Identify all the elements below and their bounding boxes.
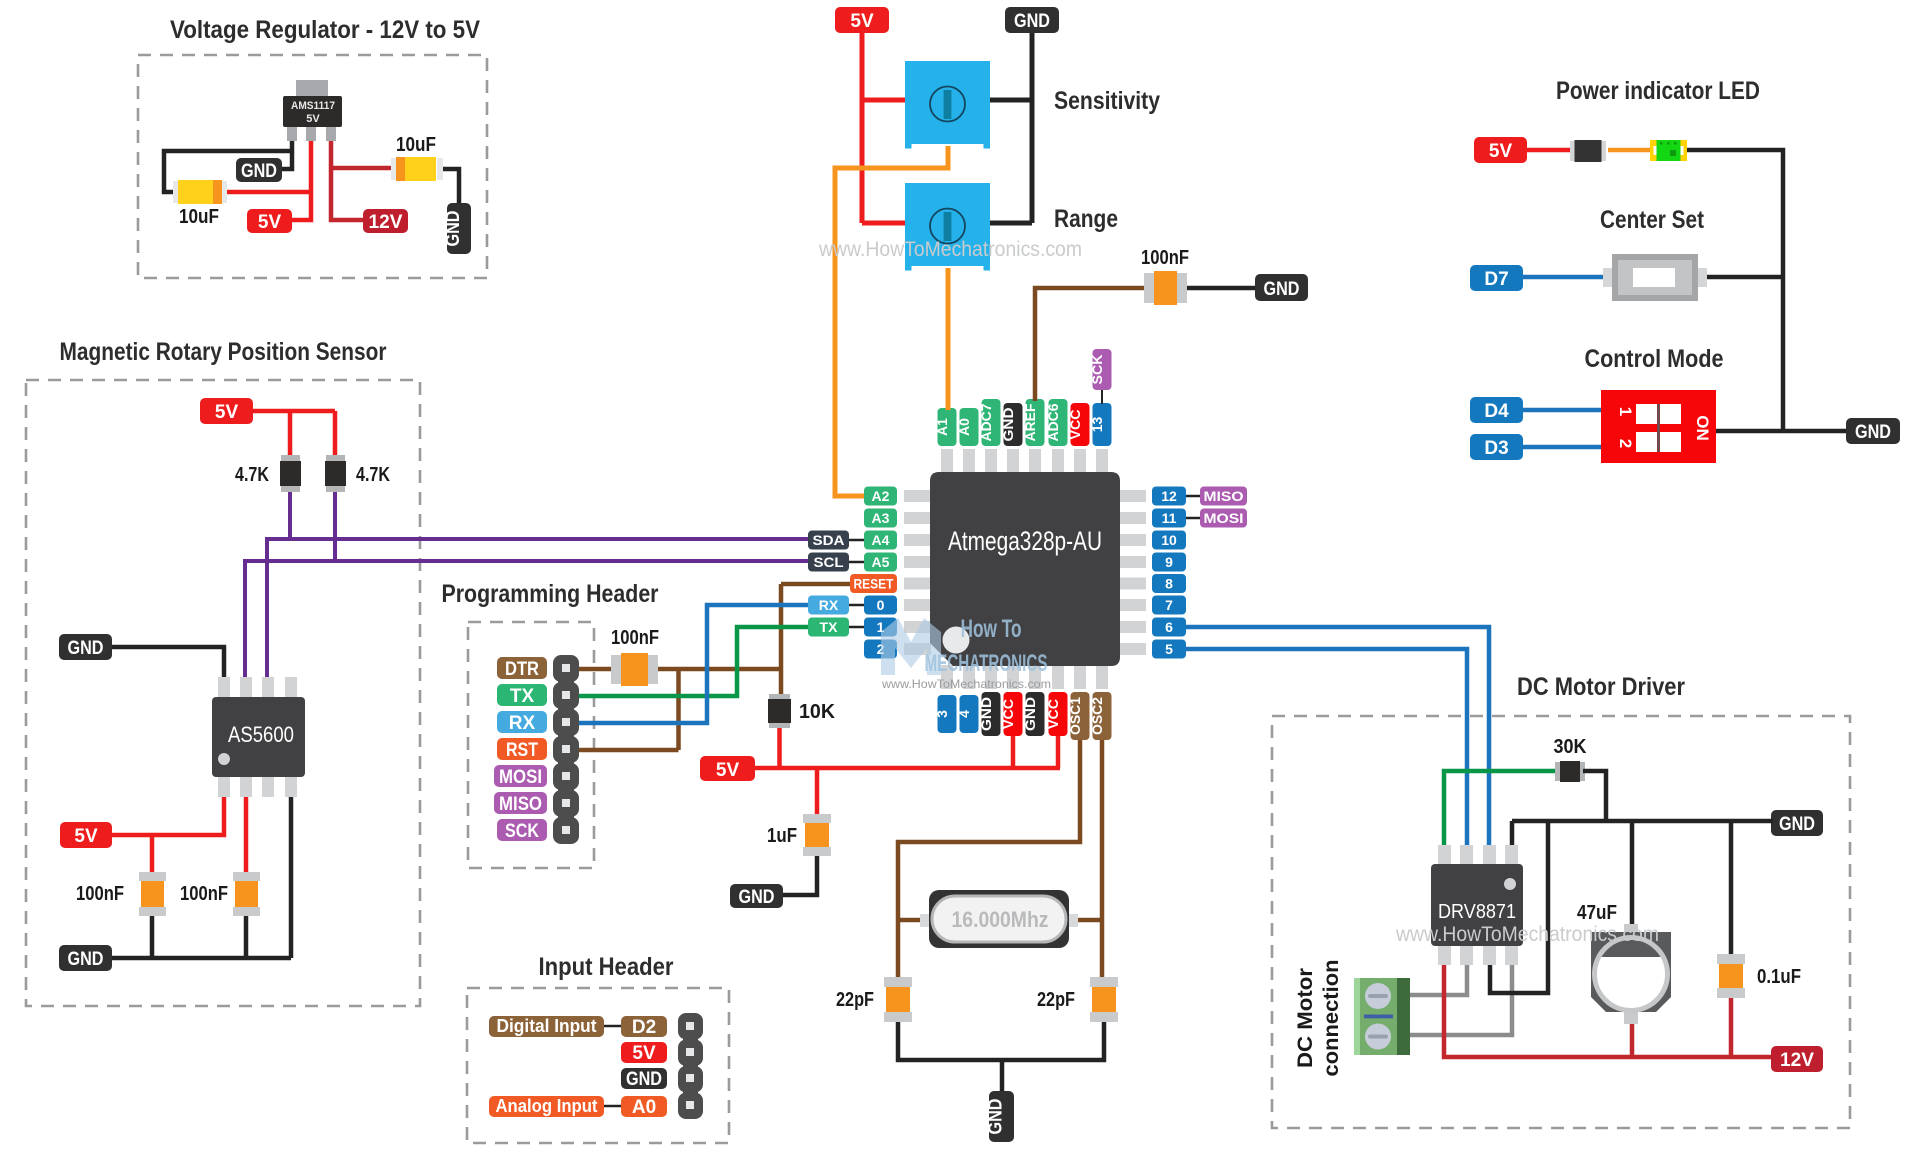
- svg-text:47uF: 47uF: [1577, 902, 1617, 924]
- svg-text:GND: GND: [978, 697, 994, 731]
- svg-text:D2: D2: [632, 1017, 656, 1038]
- svg-text:MOSI: MOSI: [1204, 510, 1244, 526]
- svg-text:GND: GND: [986, 1099, 1007, 1135]
- svg-text:Programming Header: Programming Header: [442, 580, 659, 608]
- svg-text:30K: 30K: [1554, 736, 1587, 758]
- svg-text:MECHATRONICS: MECHATRONICS: [925, 650, 1048, 677]
- svg-text:5V: 5V: [632, 1043, 656, 1064]
- svg-text:connection: connection: [1320, 960, 1343, 1077]
- svg-text:100nF: 100nF: [180, 883, 228, 905]
- svg-text:10uF: 10uF: [396, 134, 436, 156]
- svg-text:Range: Range: [1054, 205, 1118, 233]
- svg-text:GND: GND: [1779, 814, 1815, 835]
- svg-text:Voltage Regulator - 12V to 5V: Voltage Regulator - 12V to 5V: [170, 16, 480, 44]
- svg-text:12V: 12V: [369, 212, 403, 233]
- svg-text:DC Motor Driver: DC Motor Driver: [1517, 673, 1685, 701]
- svg-text:VCC: VCC: [1067, 410, 1083, 440]
- svg-text:Power indicator LED: Power indicator LED: [1556, 77, 1760, 105]
- svg-text:A4: A4: [872, 532, 890, 548]
- svg-text:22pF: 22pF: [1037, 989, 1075, 1011]
- svg-text:GND: GND: [68, 949, 104, 970]
- svg-text:13: 13: [1089, 417, 1105, 433]
- svg-text:7: 7: [1165, 597, 1173, 613]
- svg-text:5V: 5V: [850, 11, 874, 32]
- svg-text:D7: D7: [1484, 269, 1508, 290]
- svg-text:Atmega328p-AU: Atmega328p-AU: [948, 526, 1102, 556]
- svg-text:11: 11: [1162, 510, 1177, 526]
- svg-text:www.HowToMechatronics.com: www.HowToMechatronics.com: [818, 238, 1082, 261]
- svg-text:A0: A0: [956, 418, 972, 436]
- svg-text:DTR: DTR: [505, 659, 539, 680]
- svg-text:Digital Input: Digital Input: [497, 1016, 597, 1036]
- svg-text:GND: GND: [1264, 279, 1300, 300]
- svg-text:D4: D4: [1484, 401, 1509, 422]
- svg-text:100nF: 100nF: [1141, 247, 1189, 269]
- svg-text:5: 5: [1165, 641, 1173, 657]
- svg-text:DRV8871: DRV8871: [1438, 901, 1516, 923]
- svg-text:A1: A1: [934, 418, 950, 436]
- svg-text:5V: 5V: [258, 212, 282, 233]
- svg-text:SDA: SDA: [813, 532, 845, 548]
- svg-text:RX: RX: [509, 713, 536, 734]
- svg-text:GND: GND: [626, 1069, 662, 1090]
- svg-text:SCL: SCL: [814, 554, 844, 570]
- svg-text:2: 2: [1616, 439, 1635, 448]
- svg-text:DC Motor: DC Motor: [1294, 968, 1317, 1068]
- svg-text:1uF: 1uF: [767, 825, 797, 847]
- svg-text:9: 9: [1165, 554, 1173, 570]
- svg-text:OSC2: OSC2: [1089, 697, 1105, 735]
- svg-text:12: 12: [1161, 488, 1177, 504]
- svg-text:Sensitivity: Sensitivity: [1054, 87, 1160, 115]
- svg-text:GND: GND: [1022, 697, 1038, 731]
- svg-text:3: 3: [934, 710, 950, 718]
- svg-text:A5: A5: [872, 554, 890, 570]
- svg-text:www.HowToMechatronics.com: www.HowToMechatronics.com: [1395, 923, 1659, 946]
- svg-text:5V: 5V: [716, 760, 740, 781]
- svg-text:5V: 5V: [1489, 141, 1513, 162]
- svg-text:Center Set: Center Set: [1600, 206, 1705, 234]
- svg-text:GND: GND: [241, 161, 277, 182]
- svg-text:10uF: 10uF: [179, 206, 219, 228]
- svg-text:AREF: AREF: [1022, 403, 1038, 441]
- svg-text:RESET: RESET: [854, 576, 894, 592]
- svg-text:GND: GND: [1855, 422, 1891, 443]
- svg-text:GND: GND: [739, 887, 775, 908]
- svg-text:Input Header: Input Header: [539, 953, 674, 981]
- svg-text:AMS1117: AMS1117: [291, 100, 335, 112]
- svg-text:MOSI: MOSI: [499, 767, 542, 788]
- svg-text:ON: ON: [1693, 415, 1712, 441]
- svg-text:10: 10: [1161, 532, 1177, 548]
- svg-text:4.7K: 4.7K: [235, 464, 269, 486]
- svg-text:RX: RX: [819, 597, 839, 613]
- svg-text:5V: 5V: [306, 113, 320, 125]
- svg-text:SCK: SCK: [505, 821, 539, 842]
- svg-text:SCK: SCK: [1089, 355, 1105, 385]
- svg-text:RST: RST: [506, 740, 538, 761]
- svg-text:Control Mode: Control Mode: [1585, 345, 1724, 373]
- svg-text:GND: GND: [443, 211, 464, 247]
- svg-text:TX: TX: [510, 686, 535, 707]
- svg-text:10K: 10K: [799, 701, 836, 723]
- svg-text:GND: GND: [1014, 11, 1050, 32]
- svg-text:How To: How To: [961, 615, 1022, 643]
- svg-text:TX: TX: [820, 619, 839, 635]
- svg-text:0: 0: [877, 597, 885, 613]
- svg-text:0.1uF: 0.1uF: [1757, 966, 1801, 988]
- svg-text:100nF: 100nF: [76, 883, 124, 905]
- svg-text:MISO: MISO: [1204, 488, 1244, 504]
- svg-text:GND: GND: [1000, 408, 1016, 442]
- svg-text:A2: A2: [872, 488, 890, 504]
- svg-text:OSC1: OSC1: [1067, 697, 1083, 735]
- svg-text:22pF: 22pF: [836, 989, 874, 1011]
- svg-text:A3: A3: [872, 510, 890, 526]
- svg-text:MISO: MISO: [499, 794, 542, 815]
- svg-text:D3: D3: [1484, 438, 1508, 459]
- svg-text:16.000Mhz: 16.000Mhz: [952, 907, 1049, 932]
- svg-text:www.HowToMechatronics.com: www.HowToMechatronics.com: [881, 677, 1051, 691]
- svg-text:AS5600: AS5600: [228, 722, 294, 747]
- svg-text:GND: GND: [68, 638, 104, 659]
- svg-text:ADC6: ADC6: [1045, 403, 1061, 441]
- svg-text:6: 6: [1165, 619, 1173, 635]
- svg-text:100nF: 100nF: [611, 627, 659, 649]
- svg-text:VCC: VCC: [1045, 699, 1061, 729]
- svg-text:Analog Input: Analog Input: [496, 1096, 598, 1116]
- svg-text:A0: A0: [632, 1097, 656, 1118]
- svg-text:VCC: VCC: [1000, 699, 1016, 729]
- svg-text:Magnetic Rotary Position Senso: Magnetic Rotary Position Sensor: [60, 338, 387, 366]
- svg-text:5V: 5V: [215, 402, 239, 423]
- svg-text:12V: 12V: [1780, 1050, 1814, 1071]
- svg-text:4: 4: [956, 710, 972, 718]
- svg-text:5V: 5V: [74, 826, 98, 847]
- svg-text:1: 1: [1616, 407, 1635, 416]
- svg-text:8: 8: [1165, 576, 1173, 592]
- svg-text:ADC7: ADC7: [978, 403, 994, 441]
- svg-text:4.7K: 4.7K: [356, 464, 390, 486]
